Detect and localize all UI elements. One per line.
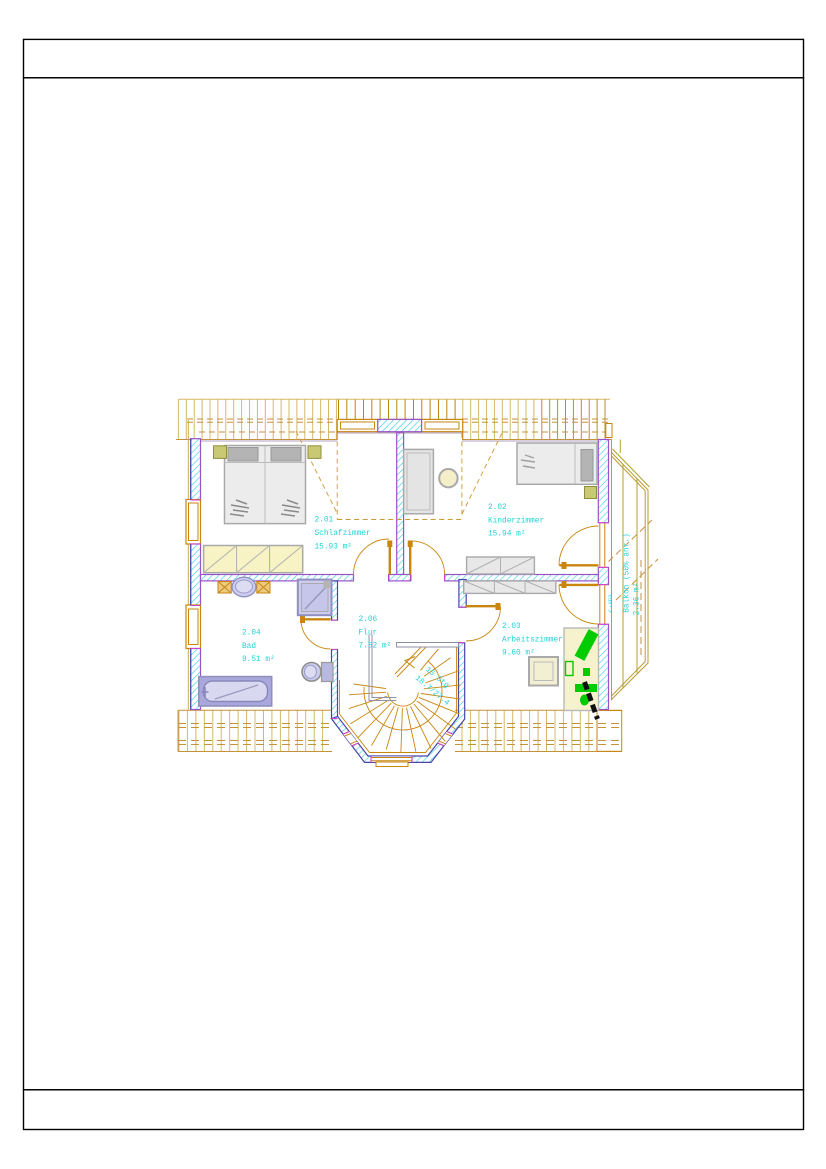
svg-text:Bad: Bad [242, 643, 256, 651]
svg-text:2.01: 2.01 [315, 517, 334, 525]
svg-text:2.03: 2.03 [502, 623, 521, 631]
svg-text:Kinderzimmer: Kinderzimmer [488, 517, 544, 525]
svg-text:15.93 m²: 15.93 m² [315, 542, 352, 551]
svg-text:2.06: 2.06 [359, 616, 378, 624]
svg-text:Flur: Flur [359, 629, 378, 637]
svg-text:15.94 m²: 15.94 m² [488, 530, 525, 539]
svg-text:Arbeitszimmer: Arbeitszimmer [502, 636, 563, 644]
svg-text:Schlafzimmer: Schlafzimmer [315, 530, 371, 538]
svg-text:9.51 m²: 9.51 m² [242, 655, 275, 664]
svg-text:2.02: 2.02 [488, 504, 507, 512]
svg-text:2.04: 2.04 [242, 630, 261, 638]
svg-text:2.36 m²: 2.36 m² [633, 583, 642, 616]
svg-text:Balkon (50% anr.): Balkon (50% anr.) [624, 533, 632, 613]
svg-text:7.52 m²: 7.52 m² [359, 642, 392, 651]
svg-text:9.60 m²: 9.60 m² [502, 649, 535, 658]
